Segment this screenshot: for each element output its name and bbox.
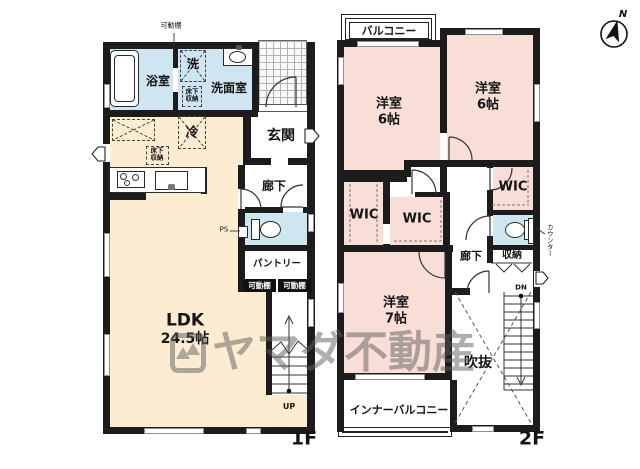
- ldk-size-label: 24.5帖: [161, 332, 210, 346]
- wic-a-label: WIC: [350, 209, 379, 222]
- entrance-label: 玄関: [267, 129, 295, 143]
- room-ldk: [110, 117, 243, 427]
- movable-shelf-b-label: 可動棚: [283, 282, 306, 290]
- movable-shelf-b: 可動棚: [278, 279, 311, 292]
- bedroom-c-name: 洋室: [383, 297, 409, 310]
- room-inner-balcony: [344, 380, 450, 425]
- floorplan-linework: [0, 0, 640, 469]
- wall: [103, 427, 315, 434]
- wall: [487, 210, 540, 215]
- toilet-bowl-1f: [260, 221, 281, 238]
- wall: [252, 42, 259, 112]
- wall: [337, 177, 407, 182]
- window: [308, 214, 314, 232]
- window: [104, 334, 110, 376]
- window: [357, 41, 419, 47]
- bedroom-a-size: 6帖: [378, 114, 400, 127]
- room-ldk-strip: [243, 292, 268, 427]
- room-hallway-2f: [447, 167, 487, 292]
- washbasin-tap: [236, 45, 242, 50]
- bathtub-inner: [114, 55, 135, 102]
- back-door-opening: [103, 144, 110, 162]
- movable-shelf-a: 可動棚: [243, 279, 276, 292]
- ps-label: PS: [220, 227, 229, 234]
- wall: [266, 292, 272, 395]
- ldk-name-label: LDK: [166, 313, 204, 330]
- washroom-label: 洗面室: [211, 82, 247, 94]
- window: [104, 84, 110, 108]
- wall: [288, 158, 307, 165]
- window: [308, 299, 314, 327]
- pipe-space-box: [238, 226, 248, 238]
- stairs-up-label: UP: [283, 403, 295, 411]
- compass: [601, 19, 627, 47]
- stove-burner: [124, 180, 130, 186]
- movable-shelf-note: 可動棚: [161, 23, 182, 30]
- door-opening: [383, 224, 390, 244]
- counter-label: カウンター: [546, 224, 553, 257]
- wall: [445, 252, 452, 373]
- wic-c-label: WIC: [499, 181, 528, 194]
- bedroom-c-size: 7帖: [385, 313, 407, 326]
- door-opening: [487, 216, 493, 236]
- wic-b-label: WIC: [403, 213, 432, 226]
- wall: [404, 160, 411, 177]
- wall: [307, 42, 315, 434]
- door-opening: [173, 68, 178, 92]
- inner-balcony-railing: [338, 427, 452, 437]
- floor2-label: 2F: [519, 430, 545, 449]
- floor1-label: 1F: [291, 430, 317, 449]
- stove-burner: [132, 174, 139, 181]
- hallway-2f-label: 廊下: [460, 251, 482, 262]
- fridge-label: 冷: [185, 127, 198, 140]
- washbasin-bowl: [229, 51, 246, 63]
- entrance-porch-tiles: [258, 40, 307, 106]
- underfloor-storage-b-label: 床下収納: [148, 148, 167, 163]
- folding-door-marks: [491, 263, 532, 272]
- room-ldk-understairs: [268, 395, 307, 427]
- hallway-1f-label: 廊下: [262, 180, 286, 192]
- kitchen-halfwall: [109, 193, 146, 200]
- wall: [450, 380, 457, 427]
- compass-circle: [601, 21, 627, 47]
- stove-burner: [120, 173, 127, 180]
- window: [144, 428, 204, 434]
- window: [246, 428, 261, 434]
- sink-faucet: [168, 184, 175, 190]
- movable-shelf-a-label: 可動棚: [248, 282, 271, 290]
- bath-label: 浴室: [146, 75, 170, 87]
- toilet-tank-1f: [251, 219, 260, 240]
- bedroom-b-size: 6帖: [477, 99, 499, 112]
- window: [355, 374, 425, 380]
- bedroom-b-name: 洋室: [475, 83, 501, 96]
- wall: [337, 170, 411, 177]
- storage-label: 収納: [502, 251, 522, 261]
- wall: [440, 167, 447, 197]
- wall: [303, 207, 307, 213]
- window: [338, 57, 344, 85]
- window: [534, 302, 540, 329]
- wall: [404, 160, 540, 167]
- balcony-label: バルコニー: [362, 26, 417, 37]
- wall: [337, 245, 453, 252]
- wall: [243, 158, 271, 165]
- void-label: 吹抜: [464, 356, 492, 370]
- washer-label: 洗: [187, 58, 199, 70]
- toilet-bowl-2f: [505, 222, 525, 238]
- window: [338, 283, 344, 313]
- wall: [245, 207, 283, 213]
- wall: [452, 288, 470, 295]
- stairs-down-label: DN: [515, 285, 527, 292]
- upper-shelf-space: [112, 119, 155, 141]
- toilet-counter-2f: [528, 218, 534, 244]
- pantry-label: パントリー: [253, 259, 301, 269]
- door-opening: [238, 189, 245, 209]
- underfloor-storage-a-label: 床下収納: [183, 89, 202, 104]
- entrance-step: [258, 104, 307, 112]
- wall: [245, 245, 307, 251]
- compass-needle-icon: [606, 19, 625, 43]
- window: [534, 84, 540, 122]
- window: [104, 233, 110, 277]
- room-stairs-1f: [272, 292, 307, 395]
- bedroom-a-name: 洋室: [376, 98, 402, 111]
- window: [472, 426, 494, 432]
- door-opening: [487, 168, 493, 190]
- compass-north-label: N: [619, 10, 627, 20]
- window: [465, 29, 503, 35]
- wall: [440, 28, 447, 133]
- door-opening: [534, 271, 540, 287]
- inner-balcony-label: インナーバルコニー: [350, 405, 449, 416]
- floorplan: 可動棚 可動棚: [0, 0, 640, 469]
- wall: [443, 197, 450, 252]
